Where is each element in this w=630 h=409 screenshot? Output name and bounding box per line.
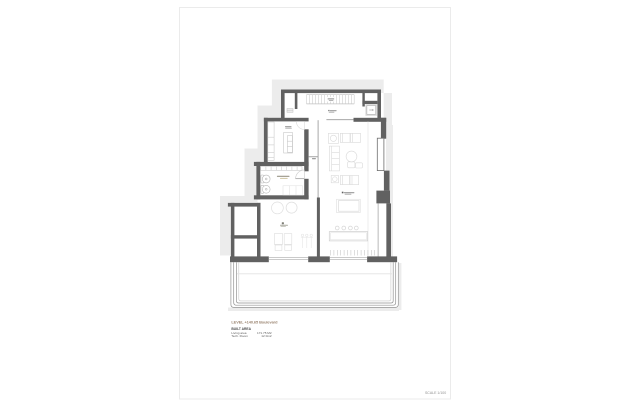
svg-text:12 0m2: 12 0m2	[261, 334, 272, 338]
svg-text:LEVEL +140.65 Boulevard: LEVEL +140.65 Boulevard	[231, 319, 278, 324]
svg-text:SCALE 1/100: SCALE 1/100	[425, 391, 446, 395]
svg-text:Tech. Room: Tech. Room	[231, 334, 248, 338]
